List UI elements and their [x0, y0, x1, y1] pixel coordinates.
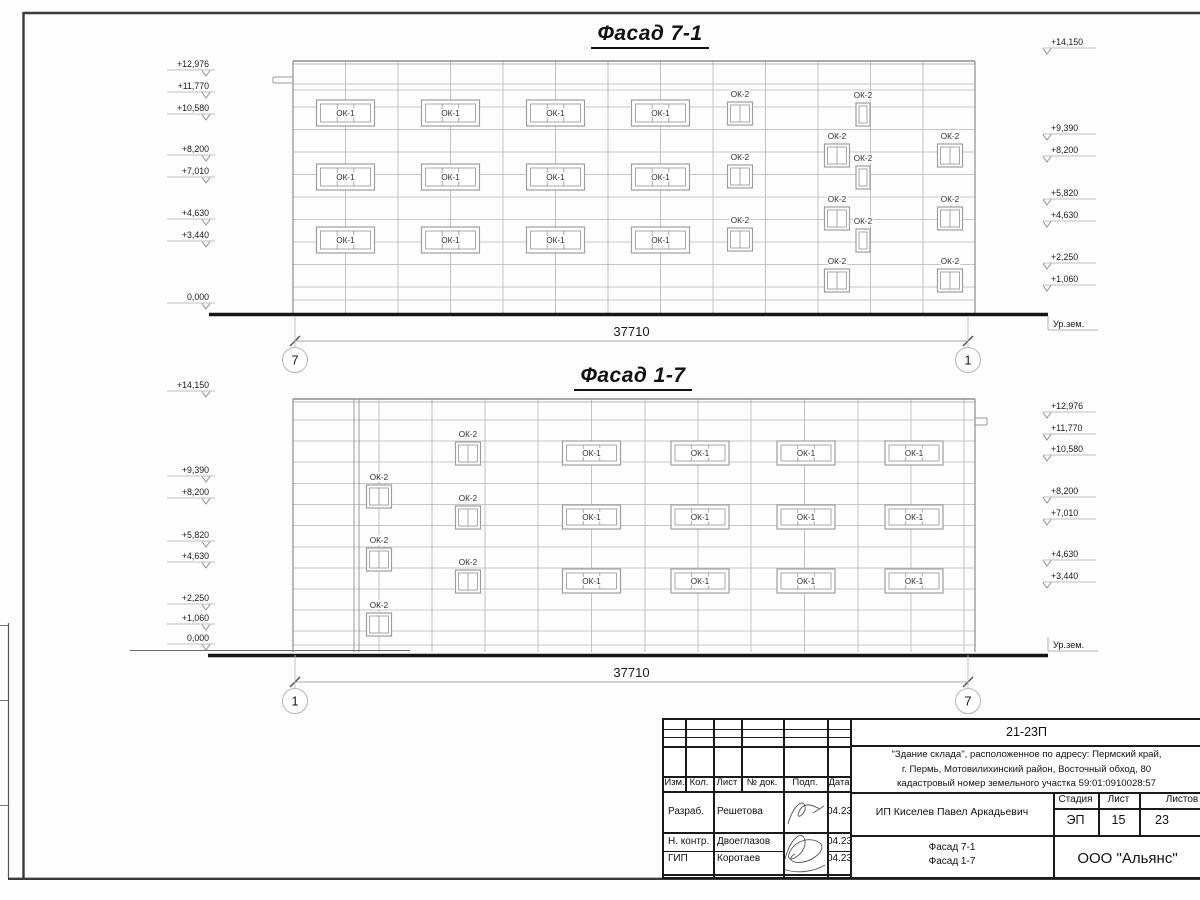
svg-text:+2,250: +2,250 [1051, 252, 1078, 262]
dimension-overall: 37710 [290, 665, 973, 687]
window-ok2: ОК-2 [825, 132, 850, 167]
elevation-mark: +4,630 [1043, 210, 1096, 227]
signature-nkontr-gip [777, 827, 831, 877]
svg-text:+9,390: +9,390 [1051, 123, 1078, 133]
svg-text:ОК-1: ОК-1 [582, 513, 601, 522]
elevation-mark: +14,150 [1043, 37, 1096, 54]
ground-level-label: Ур.зем. [1048, 637, 1098, 651]
window-ok1: ОК-1 [422, 164, 480, 190]
svg-text:+5,820: +5,820 [1051, 188, 1078, 198]
window-ok1: ОК-1 [527, 227, 585, 253]
window-ok2: ОК-2 [938, 195, 963, 230]
svg-text:+11,770: +11,770 [178, 81, 209, 91]
elevation-mark: +9,390 [167, 465, 215, 482]
role-razrab: Разраб. [668, 806, 714, 818]
elevation-mark: +8,200 [1043, 145, 1096, 162]
elevation-mark: +12,976 [167, 59, 215, 76]
svg-text:+3,440: +3,440 [182, 230, 209, 240]
title-block-divider [741, 720, 743, 791]
svg-text:ОК-1: ОК-1 [797, 449, 816, 458]
title-block-divider [664, 791, 851, 793]
window-ok1: ОК-1 [563, 505, 621, 529]
svg-text:+2,250: +2,250 [182, 593, 209, 603]
svg-text:ОК-1: ОК-1 [651, 236, 670, 245]
facade-title-1-7-text: Фасад 1-7 [574, 364, 691, 391]
elevation-mark: +3,440 [167, 230, 215, 247]
svg-text:ОК-2: ОК-2 [854, 217, 873, 226]
col-data: Дата [827, 777, 851, 788]
title-block-divider [783, 720, 785, 879]
elevation-mark: +11,770 [167, 81, 215, 98]
axis-bubble: 1 [283, 655, 308, 714]
svg-text:ОК-1: ОК-1 [441, 173, 460, 182]
window-ok2: ОК-2 [938, 257, 963, 292]
window-ok2: ОК-2 [938, 132, 963, 167]
elevation-mark: +8,200 [1043, 486, 1096, 503]
svg-text:+7,010: +7,010 [182, 166, 209, 176]
window-ok1: ОК-1 [317, 164, 375, 190]
svg-text:+5,820: +5,820 [182, 530, 209, 540]
window-ok1: ОК-1 [777, 569, 835, 593]
svg-text:+11,770: +11,770 [1051, 423, 1082, 433]
window-ok2: ОК-2 [854, 217, 873, 252]
svg-text:+10,580: +10,580 [1051, 444, 1083, 454]
elevation-mark: +1,060 [1043, 274, 1096, 291]
window-ok2: ОК-2 [825, 195, 850, 230]
title-block-divider [664, 729, 851, 730]
title-block-divider [685, 720, 687, 791]
svg-text:ОК-2: ОК-2 [828, 257, 847, 266]
title-block-divider [664, 851, 783, 852]
svg-text:ОК-2: ОК-2 [370, 473, 389, 482]
elevation-mark: +7,010 [1043, 508, 1096, 525]
svg-text:ОК-2: ОК-2 [731, 216, 750, 225]
ground-level-label: Ур.зем. [1048, 316, 1098, 330]
svg-text:ОК-1: ОК-1 [651, 173, 670, 182]
svg-text:ОК-2: ОК-2 [854, 91, 873, 100]
svg-text:ОК-1: ОК-1 [336, 109, 355, 118]
title-block-divider [851, 745, 1200, 747]
svg-text:0,000: 0,000 [187, 292, 209, 302]
svg-text:ОК-2: ОК-2 [370, 536, 389, 545]
window-ok2: ОК-2 [854, 154, 873, 189]
elevation-mark: +11,770 [1043, 423, 1096, 440]
svg-text:+1,060: +1,060 [1051, 274, 1078, 284]
title-block: Изм. Кол. Лист № док. Подп. Дата Разраб.… [662, 718, 1200, 879]
svg-text:ОК-2: ОК-2 [941, 132, 960, 141]
svg-text:ОК-1: ОК-1 [582, 449, 601, 458]
window-ok2: ОК-2 [728, 153, 753, 188]
window-ok1: ОК-1 [317, 100, 375, 126]
window-ok1: ОК-1 [422, 100, 480, 126]
svg-text:ОК-1: ОК-1 [797, 513, 816, 522]
svg-text:ОК-1: ОК-1 [582, 577, 601, 586]
axis-bubble: 1 [956, 316, 981, 373]
drawing-sheet: ОК-1ОК-1ОК-1ОК-1ОК-1ОК-1ОК-1ОК-1ОК-1ОК-1… [0, 0, 1200, 900]
elevation-mark: +4,630 [167, 208, 215, 225]
company-name: ООО "Альянс" [1053, 850, 1200, 868]
subject-line-1: Фасад 7-1 [851, 841, 1053, 855]
elevation-mark: 0,000 [167, 292, 215, 309]
svg-text:+12,976: +12,976 [177, 59, 209, 69]
elevation-mark: +2,250 [167, 593, 215, 610]
window-ok1: ОК-1 [885, 569, 943, 593]
window-ok1: ОК-1 [671, 505, 729, 529]
window-ok1: ОК-1 [885, 441, 943, 465]
window-ok2: ОК-2 [367, 473, 392, 508]
facade-title-7-1: Фасад 7-1 [555, 22, 745, 46]
elevation-mark: +5,820 [167, 530, 215, 547]
svg-text:ОК-2: ОК-2 [941, 195, 960, 204]
window-ok2: ОК-2 [728, 216, 753, 251]
svg-text:+9,390: +9,390 [182, 465, 209, 475]
window-ok2: ОК-2 [367, 536, 392, 571]
window-ok2: ОК-2 [367, 601, 392, 636]
name-gip: Коротаев [717, 853, 781, 865]
address-line-2: г. Пермь, Мотовилихинский район, Восточн… [856, 763, 1197, 778]
svg-text:+10,580: +10,580 [177, 103, 209, 113]
address-line-1: "Здание склада", расположенное по адресу… [856, 748, 1197, 763]
svg-text:ОК-2: ОК-2 [459, 494, 478, 503]
window-ok1: ОК-1 [777, 441, 835, 465]
svg-text:Ур.зем.: Ур.зем. [1053, 640, 1084, 650]
window-ok2: ОК-2 [728, 90, 753, 125]
svg-text:+8,200: +8,200 [182, 487, 209, 497]
window-ok1: ОК-1 [563, 441, 621, 465]
title-block-divider [1098, 792, 1100, 835]
window-ok1: ОК-1 [527, 100, 585, 126]
svg-text:ОК-1: ОК-1 [691, 513, 710, 522]
svg-text:ОК-2: ОК-2 [941, 257, 960, 266]
svg-text:+12,976: +12,976 [1051, 401, 1083, 411]
title-block-divider [664, 746, 851, 748]
svg-text:ОК-1: ОК-1 [336, 173, 355, 182]
svg-text:Ур.зем.: Ур.зем. [1053, 319, 1084, 329]
window-ok2: ОК-2 [456, 430, 481, 465]
doc-number: 21-23П [851, 725, 1200, 740]
col-ndok: № док. [741, 777, 783, 788]
svg-text:7: 7 [291, 353, 298, 368]
svg-text:+4,630: +4,630 [1051, 210, 1078, 220]
elevation-mark: +7,010 [167, 166, 215, 183]
title-block-divider [851, 792, 1200, 794]
svg-text:+3,440: +3,440 [1051, 571, 1078, 581]
svg-text:ОК-1: ОК-1 [691, 449, 710, 458]
svg-text:+8,200: +8,200 [182, 144, 209, 154]
elevation-mark: +4,630 [1043, 549, 1096, 566]
title-block-divider [664, 776, 851, 778]
title-block-divider [1139, 792, 1141, 835]
title-block-divider [1053, 808, 1200, 810]
elevation-mark: +5,820 [1043, 188, 1096, 205]
name-razrab: Решетова [717, 806, 781, 818]
window-ok1: ОК-1 [885, 505, 943, 529]
svg-text:+7,010: +7,010 [1051, 508, 1078, 518]
elevation-mark: +2,250 [1043, 252, 1096, 269]
svg-text:ОК-2: ОК-2 [459, 558, 478, 567]
dimension-overall: 37710 [290, 324, 973, 346]
axis-bubble: 7 [283, 316, 308, 373]
svg-text:ОК-1: ОК-1 [546, 173, 565, 182]
svg-text:+4,630: +4,630 [182, 208, 209, 218]
svg-text:37710: 37710 [613, 665, 649, 680]
elevation-mark: 0,000 [167, 633, 215, 650]
svg-text:37710: 37710 [613, 324, 649, 339]
date-razrab: 04.23 [827, 806, 851, 818]
sheets-label: Листов [1142, 794, 1200, 806]
svg-text:ОК-1: ОК-1 [651, 109, 670, 118]
facade-title-7-1-text: Фасад 7-1 [591, 22, 708, 49]
axis-bubble: 7 [956, 655, 981, 714]
svg-text:ОК-2: ОК-2 [828, 132, 847, 141]
name-nkontr: Двоеглазов [717, 836, 783, 848]
col-kol: Кол. [685, 777, 713, 788]
elevation-mark: +14,150 [167, 380, 215, 397]
svg-text:ОК-1: ОК-1 [546, 236, 565, 245]
window-ok1: ОК-1 [632, 164, 690, 190]
role-gip: ГИП [668, 853, 714, 865]
svg-text:+8,200: +8,200 [1051, 145, 1078, 155]
window-ok2: ОК-2 [825, 257, 850, 292]
title-block-divider [664, 874, 851, 876]
facade-1-7: ОК-1ОК-1ОК-1ОК-1ОК-1ОК-1ОК-1ОК-1ОК-1ОК-1… [130, 380, 1098, 714]
window-ok2: ОК-2 [854, 91, 873, 126]
sheets-value: 23 [1139, 813, 1185, 828]
svg-text:ОК-1: ОК-1 [691, 577, 710, 586]
svg-text:+8,200: +8,200 [1051, 486, 1078, 496]
title-block-divider [827, 720, 829, 879]
svg-text:+4,630: +4,630 [1051, 549, 1078, 559]
facade-title-1-7: Фасад 1-7 [538, 364, 728, 388]
svg-text:ОК-1: ОК-1 [797, 577, 816, 586]
svg-text:ОК-2: ОК-2 [854, 154, 873, 163]
svg-text:ОК-1: ОК-1 [905, 513, 924, 522]
elevation-mark: +4,630 [167, 551, 215, 568]
title-block-divider [851, 835, 1200, 837]
svg-text:ОК-2: ОК-2 [459, 430, 478, 439]
svg-text:+4,630: +4,630 [182, 551, 209, 561]
svg-text:ОК-1: ОК-1 [441, 236, 460, 245]
sheet-value: 15 [1098, 813, 1139, 828]
title-block-divider [850, 720, 852, 879]
window-ok1: ОК-1 [671, 441, 729, 465]
svg-text:ОК-2: ОК-2 [731, 90, 750, 99]
elevation-mark: +3,440 [1043, 571, 1096, 588]
svg-text:ОК-1: ОК-1 [336, 236, 355, 245]
elevation-mark: +8,200 [167, 144, 215, 161]
window-ok1: ОК-1 [777, 505, 835, 529]
svg-text:ОК-2: ОК-2 [828, 195, 847, 204]
facade-7-1: ОК-1ОК-1ОК-1ОК-1ОК-1ОК-1ОК-1ОК-1ОК-1ОК-1… [167, 37, 1098, 373]
elevation-mark: +12,976 [1043, 401, 1096, 418]
title-block-divider [827, 851, 851, 852]
title-block-divider [664, 832, 851, 834]
svg-text:ОК-1: ОК-1 [905, 449, 924, 458]
stage-label: Стадия [1053, 794, 1098, 806]
wall-panel-grid [293, 399, 987, 652]
project-address: "Здание склада", расположенное по адресу… [856, 748, 1197, 792]
elevation-mark: +10,580 [167, 103, 215, 120]
title-block-divider [664, 737, 851, 738]
subject-line-2: Фасад 1-7 [851, 855, 1053, 869]
svg-text:+14,150: +14,150 [177, 380, 209, 390]
window-ok1: ОК-1 [527, 164, 585, 190]
elevation-mark: +10,580 [1043, 444, 1096, 461]
svg-text:ОК-1: ОК-1 [546, 109, 565, 118]
window-ok2: ОК-2 [456, 558, 481, 593]
svg-text:+1,060: +1,060 [182, 613, 209, 623]
window-ok1: ОК-1 [422, 227, 480, 253]
svg-text:ОК-1: ОК-1 [905, 577, 924, 586]
window-ok1: ОК-1 [632, 227, 690, 253]
elevation-mark: +8,200 [167, 487, 215, 504]
client-name: ИП Киселев Павел Аркадьевич [851, 806, 1053, 819]
svg-text:1: 1 [291, 694, 298, 709]
window-ok1: ОК-1 [317, 227, 375, 253]
svg-text:ОК-1: ОК-1 [441, 109, 460, 118]
col-list: Лист [713, 777, 741, 788]
window-ok1: ОК-1 [632, 100, 690, 126]
svg-text:7: 7 [964, 694, 971, 709]
elevation-mark: +9,390 [1043, 123, 1096, 140]
svg-text:0,000: 0,000 [187, 633, 209, 643]
svg-text:ОК-2: ОК-2 [731, 153, 750, 162]
title-block-divider [713, 720, 715, 879]
window-ok2: ОК-2 [456, 494, 481, 529]
col-podp: Подп. [783, 777, 827, 788]
window-ok1: ОК-1 [671, 569, 729, 593]
sheet-label: Лист [1098, 794, 1139, 806]
svg-text:1: 1 [964, 353, 971, 368]
svg-text:ОК-2: ОК-2 [370, 601, 389, 610]
col-izm: Изм. [664, 777, 685, 788]
sheet-subject: Фасад 7-1 Фасад 1-7 [851, 841, 1053, 869]
stage-value: ЭП [1053, 813, 1098, 828]
window-ok1: ОК-1 [563, 569, 621, 593]
address-line-3: кадастровый номер земельного участка 59:… [856, 777, 1197, 792]
elevation-mark: +1,060 [167, 613, 215, 630]
role-nkontr: Н. контр. [668, 836, 716, 848]
svg-text:+14,150: +14,150 [1051, 37, 1083, 47]
